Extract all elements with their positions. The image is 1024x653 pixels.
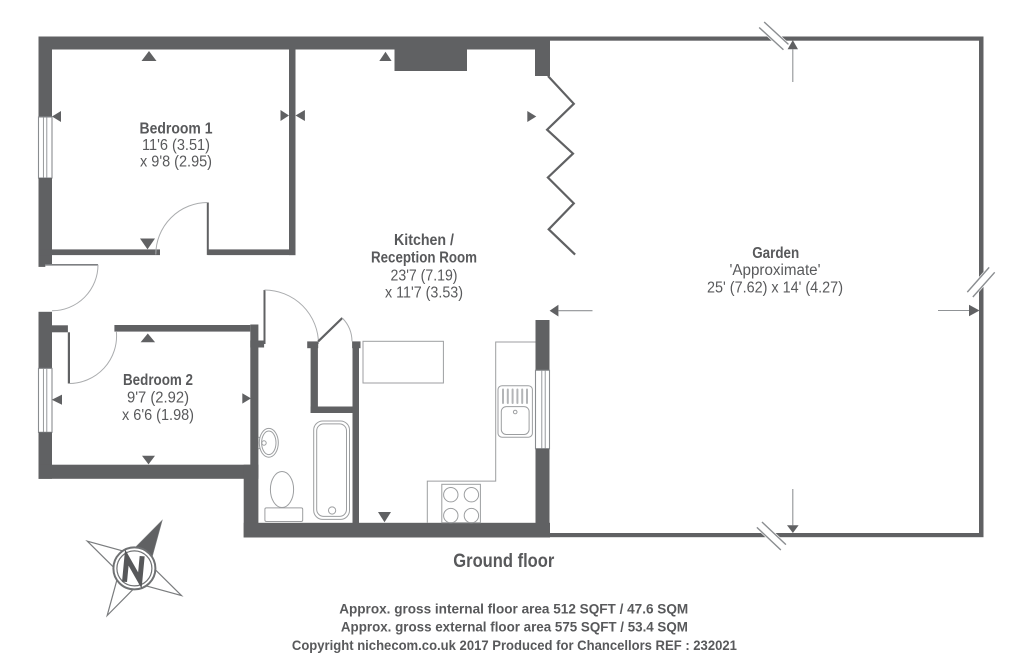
svg-text:Approx. gross external floor a: Approx. gross external floor area 575 SQ… <box>341 619 688 635</box>
svg-text:x 11'7 (3.53): x 11'7 (3.53) <box>385 285 463 302</box>
svg-text:9'7 (2.92): 9'7 (2.92) <box>127 389 189 406</box>
svg-text:Copyright nichecom.co.uk 2017: Copyright nichecom.co.uk 2017 Produced f… <box>292 637 737 653</box>
svg-text:Bedroom 2: Bedroom 2 <box>123 372 193 389</box>
svg-text:Ground floor: Ground floor <box>453 551 554 572</box>
svg-text:Kitchen /: Kitchen / <box>394 232 455 249</box>
svg-text:11'6 (3.51): 11'6 (3.51) <box>142 137 210 154</box>
svg-text:23'7 (7.19): 23'7 (7.19) <box>391 268 458 285</box>
svg-text:Bedroom 1: Bedroom 1 <box>140 121 213 138</box>
svg-text:x 9'8 (2.95): x 9'8 (2.95) <box>140 154 212 171</box>
svg-text:Reception Room: Reception Room <box>371 250 477 267</box>
svg-text:x 6'6 (1.98): x 6'6 (1.98) <box>122 407 194 424</box>
svg-text:Approx. gross internal floor a: Approx. gross internal floor area 512 SQ… <box>339 600 688 616</box>
svg-text:Garden: Garden <box>752 245 799 262</box>
svg-text:25' (7.62) x 14' (4.27): 25' (7.62) x 14' (4.27) <box>707 280 843 297</box>
svg-text:'Approximate': 'Approximate' <box>730 262 821 279</box>
